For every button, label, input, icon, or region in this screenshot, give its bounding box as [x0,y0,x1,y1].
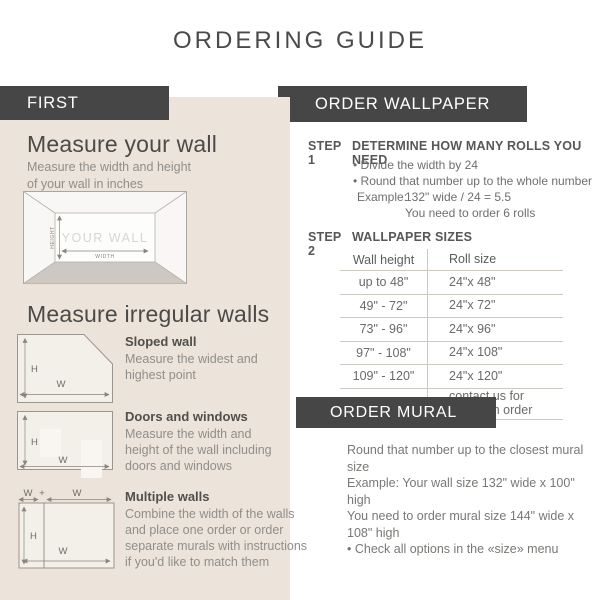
table-row: 109" - 120" 24"x 120" [340,365,563,389]
cell-roll-size: 24"x 120" [427,365,563,388]
sloped-wall-desc: Measure the widest and highest point [125,351,258,383]
doors-windows-desc: Measure the width and height of the wall… [125,426,272,474]
table-row: 73" - 96" 24"x 96" [340,318,563,342]
step1-bullets: • Divide the width by 24 • Round that nu… [353,158,592,189]
h-label: H [31,437,38,448]
multiple-walls-diagram: W + W H W [17,484,117,574]
doors-windows-name: Doors and windows [125,409,248,424]
ordering-guide-page: ORDERING GUIDE FIRST ORDER WALLPAPER Mea… [0,0,600,600]
doors-windows-diagram: H W [17,411,113,478]
w-label: W [57,379,66,390]
h-label: H [31,364,38,375]
example-value: 132" wide / 24 = 5.5 [405,190,511,204]
mural-line: Example: Your wall size 132" wide x 100"… [347,475,600,508]
h-label: H [30,531,37,542]
order-mural-header-box: ORDER MURAL [296,397,496,428]
width-label: WIDTH [95,254,114,260]
window-shape [40,429,61,457]
step1-bullet: • Round that number up to the whole numb… [353,174,592,190]
table-row: 49" - 72" 24"x 72" [340,295,563,319]
measure-wall-title: Measure your wall [27,131,217,158]
measure-wall-subtitle: Measure the width and height of your wal… [27,159,191,193]
sloped-wall-diagram: H W [17,334,113,403]
your-wall-label: YOUR WALL [62,231,149,245]
w-label: W [73,488,82,499]
order-wallpaper-header-box: ORDER WALLPAPER [278,86,527,122]
table-header-row: Wall height Roll size [340,249,563,271]
irregular-walls-title: Measure irregular walls [27,301,269,328]
w-label: W [24,488,33,499]
mural-instructions: Round that number up to the closest mura… [347,442,600,558]
cell-roll-size: 24"x 96" [427,318,563,341]
page-title: ORDERING GUIDE [0,27,600,55]
mural-line: You need to order mural size 144" wide x… [347,508,600,541]
w-label: W [59,455,68,466]
first-label: FIRST [27,94,79,112]
cell-wall-height: 49" - 72" [340,295,427,318]
wallpaper-sizes-table: Wall height Roll size up to 48" 24"x 48"… [340,249,563,420]
height-label: HEIGHT [50,226,56,249]
multiple-walls-desc: Combine the width of the walls and place… [125,506,307,570]
multiple-walls-name: Multiple walls [125,489,210,504]
door-shape [81,440,102,478]
sloped-wall-name: Sloped wall [125,334,197,349]
cell-wall-height: up to 48" [340,271,427,294]
mural-line: • Check all options in the «size» menu [347,541,600,558]
step1-bullet: • Divide the width by 24 [353,158,592,174]
order-mural-label: ORDER MURAL [330,404,457,421]
first-header-box: FIRST [0,86,169,120]
cell-roll-size: 24"x 108" [427,342,563,365]
w-label: W [59,546,68,557]
wall-3d-diagram: YOUR WALL HEIGHT WIDTH [23,191,187,284]
example-label: Example: [357,190,405,204]
cell-wall-height: 97" - 108" [340,342,427,365]
mural-line: Round that number up to the closest mura… [347,442,600,475]
example-result: You need to order 6 rolls [405,206,535,220]
col-header-roll-size: Roll size [427,249,563,270]
cell-roll-size: 24"x 72" [427,295,563,318]
order-wallpaper-label: ORDER WALLPAPER [315,95,490,113]
table-row: 97" - 108" 24"x 108" [340,342,563,366]
step1-example: Example: 132" wide / 24 = 5.5 [357,190,511,204]
table-row: up to 48" 24"x 48" [340,271,563,295]
step1-label: STEP 1 [308,139,352,167]
cell-roll-size: 24"x 48" [427,271,563,294]
col-header-wall-height: Wall height [340,249,427,270]
cell-wall-height: 73" - 96" [340,318,427,341]
cell-wall-height: 109" - 120" [340,365,427,388]
plus-label: + [39,488,45,499]
